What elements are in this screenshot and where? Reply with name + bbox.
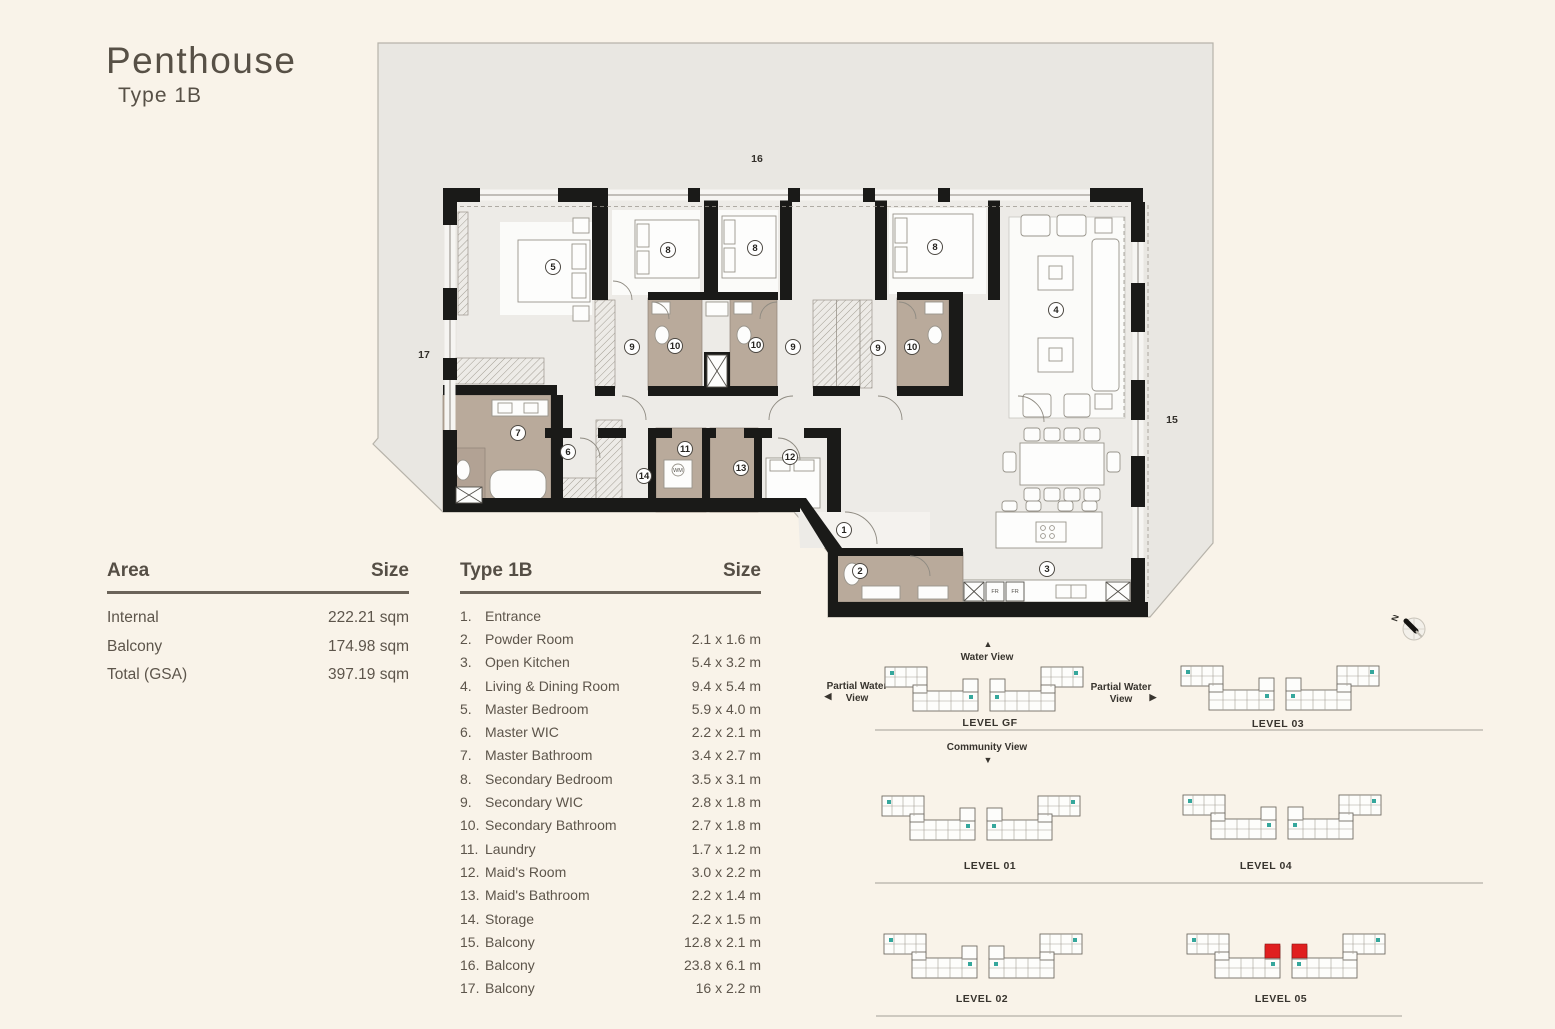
row-size: 3.4 x 2.7 m bbox=[692, 747, 761, 763]
list-item: 13.Maid's Bathroom2.2 x 1.4 m bbox=[460, 884, 761, 907]
row-num: 17. bbox=[460, 980, 485, 996]
list-item: 5.Master Bedroom5.9 x 4.0 m bbox=[460, 697, 761, 720]
level-04-plan bbox=[1183, 795, 1381, 839]
row-num: 8. bbox=[460, 771, 485, 787]
level-04-label: LEVEL 04 bbox=[1240, 860, 1292, 872]
row-name: Secondary Bathroom bbox=[485, 817, 617, 833]
row-num: 9. bbox=[460, 794, 485, 810]
row-name: Maid's Bathroom bbox=[485, 887, 590, 903]
row-name: Storage bbox=[485, 911, 534, 927]
row-size: 2.2 x 1.4 m bbox=[692, 887, 761, 903]
level-gf-plan bbox=[885, 667, 1083, 711]
partial-water-view-left-label: View bbox=[846, 693, 869, 704]
level-key-plans: N ▲ Water View Partial Water View ◀ Part… bbox=[810, 615, 1510, 1029]
row-num: 10. bbox=[460, 817, 485, 833]
room-label-storage: 14 bbox=[639, 471, 650, 482]
row-name: Master WIC bbox=[485, 724, 559, 740]
row-size: 3.0 x 2.2 m bbox=[692, 864, 761, 880]
row-size: 2.1 x 1.6 m bbox=[692, 631, 761, 647]
table-row: Balcony 174.98 sqm bbox=[107, 633, 409, 662]
row-num: 16. bbox=[460, 957, 485, 973]
row-size: 2.8 x 1.8 m bbox=[692, 794, 761, 810]
room-label-bedroom: 8 bbox=[665, 245, 670, 256]
list-item: 12.Maid's Room3.0 x 2.2 m bbox=[460, 860, 761, 883]
row-num: 13. bbox=[460, 887, 485, 903]
list-item: 14.Storage2.2 x 1.5 m bbox=[460, 907, 761, 930]
washing-machine-label: WM bbox=[673, 468, 683, 474]
row-size: 3.5 x 3.1 m bbox=[692, 771, 761, 787]
row-name: Master Bathroom bbox=[485, 747, 592, 763]
list-item: 3.Open Kitchen5.4 x 3.2 m bbox=[460, 651, 761, 674]
water-view-label: Water View bbox=[961, 652, 1014, 663]
room-label-powder: 2 bbox=[857, 566, 862, 577]
community-view-label: Community View bbox=[947, 742, 1028, 753]
row-name: Balcony bbox=[485, 957, 535, 973]
level-gf-label: LEVEL GF bbox=[962, 717, 1017, 729]
room-label-master-bedroom: 5 bbox=[550, 262, 556, 273]
row-num: 11. bbox=[460, 841, 485, 857]
list-item: 8.Secondary Bedroom3.5 x 3.1 m bbox=[460, 767, 761, 790]
area-header-label: Area bbox=[107, 560, 149, 582]
room-label-living: 4 bbox=[1053, 305, 1059, 316]
penthouse-unit-highlight bbox=[1292, 944, 1307, 958]
row-size: 12.8 x 2.1 m bbox=[684, 934, 761, 950]
page-subtitle: Type 1B bbox=[118, 84, 202, 108]
level-01-label: LEVEL 01 bbox=[964, 860, 1016, 872]
partial-water-view-left-label: Partial Water bbox=[827, 681, 888, 692]
fridge-label: FR bbox=[991, 589, 998, 595]
room-label-laundry: 11 bbox=[680, 444, 691, 455]
compass-icon: N bbox=[1389, 615, 1425, 640]
row-name: Balcony bbox=[485, 980, 535, 996]
level-03-label: LEVEL 03 bbox=[1252, 718, 1304, 730]
level-02-plan bbox=[884, 934, 1082, 978]
room-label-bedroom: 8 bbox=[752, 243, 757, 254]
row-size: 5.9 x 4.0 m bbox=[692, 701, 761, 717]
arrow-left-icon: ◀ bbox=[824, 691, 833, 701]
room-label-bedroom: 8 bbox=[932, 242, 937, 253]
row-num: 15. bbox=[460, 934, 485, 950]
partial-water-view-right-label: Partial Water bbox=[1091, 682, 1152, 693]
row-num: 7. bbox=[460, 747, 485, 763]
row-name: Living & Dining Room bbox=[485, 678, 620, 694]
level-05-plan bbox=[1187, 934, 1385, 978]
level-05-label: LEVEL 05 bbox=[1255, 993, 1307, 1005]
room-label-wic: 9 bbox=[875, 343, 880, 354]
penthouse-unit-highlight bbox=[1265, 944, 1280, 958]
row-size: 2.2 x 1.5 m bbox=[692, 911, 761, 927]
room-label-master-bath: 7 bbox=[515, 428, 520, 439]
list-item: 17.Balcony16 x 2.2 m bbox=[460, 977, 761, 1000]
row-size: 2.2 x 2.1 m bbox=[692, 724, 761, 740]
area-row-value: 174.98 sqm bbox=[328, 638, 409, 656]
room-label-bathroom: 10 bbox=[670, 341, 681, 352]
room-label-kitchen: 3 bbox=[1044, 564, 1049, 575]
room-label-maid-bath: 13 bbox=[736, 463, 747, 474]
level-03-plan bbox=[1181, 666, 1379, 710]
row-name: Secondary WIC bbox=[485, 794, 583, 810]
partial-water-view-right-label: View bbox=[1110, 694, 1133, 705]
area-row-label: Balcony bbox=[107, 638, 162, 656]
table-row: Total (GSA) 397.19 sqm bbox=[107, 661, 409, 690]
room-label-entrance: 1 bbox=[841, 525, 847, 536]
room-label-wic: 9 bbox=[790, 342, 795, 353]
row-size: 1.7 x 1.2 m bbox=[692, 841, 761, 857]
room-label-bathroom: 10 bbox=[907, 342, 918, 353]
list-item: 6.Master WIC2.2 x 2.1 m bbox=[460, 720, 761, 743]
row-num: 3. bbox=[460, 654, 485, 670]
room-label-maid-room: 12 bbox=[785, 452, 796, 463]
row-name: Open Kitchen bbox=[485, 654, 570, 670]
brochure-page: { "header": { "title": "Penthouse", "sub… bbox=[0, 0, 1555, 1029]
list-item: 11.Laundry1.7 x 1.2 m bbox=[460, 837, 761, 860]
row-size: 9.4 x 5.4 m bbox=[692, 678, 761, 694]
compass-north-label: N bbox=[1389, 615, 1401, 623]
room-label-master-wic: 6 bbox=[565, 447, 570, 458]
list-item: 9.Secondary WIC2.8 x 1.8 m bbox=[460, 790, 761, 813]
row-num: 14. bbox=[460, 911, 485, 927]
row-name: Balcony bbox=[485, 934, 535, 950]
row-num: 2. bbox=[460, 631, 485, 647]
area-row-value: 397.19 sqm bbox=[328, 666, 409, 684]
list-item: 10.Secondary Bathroom2.7 x 1.8 m bbox=[460, 814, 761, 837]
row-num: 6. bbox=[460, 724, 485, 740]
row-num: 4. bbox=[460, 678, 485, 694]
page-title: Penthouse bbox=[106, 40, 296, 82]
arrow-down-icon: ▼ bbox=[984, 755, 993, 765]
row-size: 23.8 x 6.1 m bbox=[684, 957, 761, 973]
row-name: Maid's Room bbox=[485, 864, 566, 880]
row-size: 16 x 2.2 m bbox=[696, 980, 761, 996]
arrow-right-icon: ▶ bbox=[1149, 692, 1158, 702]
row-name: Secondary Bedroom bbox=[485, 771, 613, 787]
level-02-label: LEVEL 02 bbox=[956, 993, 1008, 1005]
list-item: 2.Powder Room2.1 x 1.6 m bbox=[460, 627, 761, 650]
row-num: 5. bbox=[460, 701, 485, 717]
list-item: 4.Living & Dining Room9.4 x 5.4 m bbox=[460, 674, 761, 697]
room-label-bathroom: 10 bbox=[751, 340, 762, 351]
balcony-label-top: 16 bbox=[751, 153, 763, 165]
arrow-up-icon: ▲ bbox=[984, 639, 993, 649]
area-row-label: Internal bbox=[107, 609, 159, 627]
row-name: Laundry bbox=[485, 841, 536, 857]
row-name: Master Bedroom bbox=[485, 701, 588, 717]
balcony-label-right: 15 bbox=[1166, 414, 1178, 426]
floor-plan: FR FR WM 1 2 3 4 5 6 7 8 8 8 9 9 9 10 10… bbox=[360, 30, 1230, 630]
list-item: 7.Master Bathroom3.4 x 2.7 m bbox=[460, 744, 761, 767]
row-size: 2.7 x 1.8 m bbox=[692, 817, 761, 833]
row-name: Powder Room bbox=[485, 631, 574, 647]
row-size: 5.4 x 3.2 m bbox=[692, 654, 761, 670]
fridge-label: FR bbox=[1011, 589, 1018, 595]
room-label-wic: 9 bbox=[629, 342, 634, 353]
balcony-label-left: 17 bbox=[418, 349, 430, 361]
area-row-label: Total (GSA) bbox=[107, 666, 187, 684]
row-num: 12. bbox=[460, 864, 485, 880]
level-01-plan bbox=[882, 796, 1080, 840]
list-item: 16.Balcony23.8 x 6.1 m bbox=[460, 953, 761, 976]
list-item: 15.Balcony12.8 x 2.1 m bbox=[460, 930, 761, 953]
